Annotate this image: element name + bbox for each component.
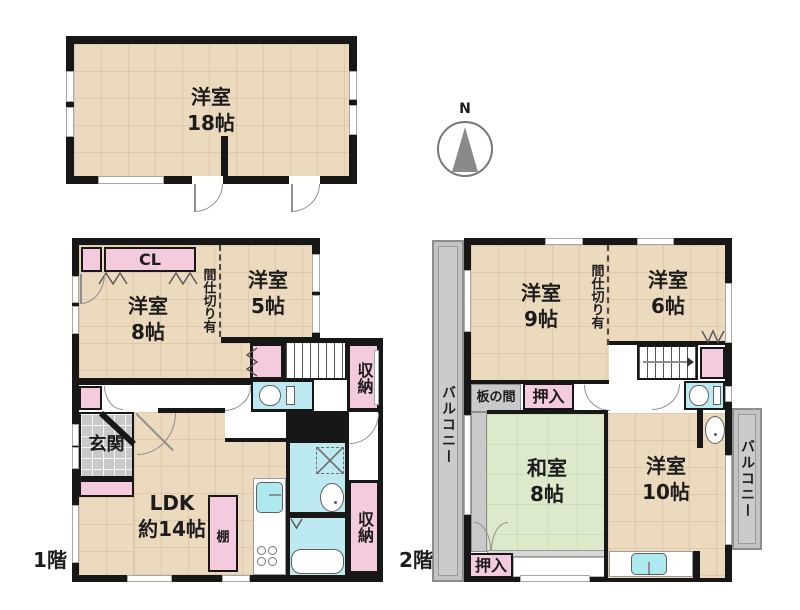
f2-window — [637, 238, 674, 245]
f2-partition-dashed-line — [607, 245, 609, 345]
f2-west10-size: 10帖 — [642, 479, 690, 505]
annex-room-size: 18帖 — [187, 110, 235, 136]
f1-window — [72, 276, 79, 303]
f2-west10-name: 洋室 — [646, 453, 686, 479]
f2-west9-name: 洋室 — [521, 280, 561, 306]
compass-needle-icon — [452, 127, 478, 172]
f2-veranda-strip — [513, 557, 607, 577]
washbasin-icon — [705, 416, 725, 444]
f2-washitsu-label: 和室 8帖 — [489, 450, 605, 512]
annex-room-label: 洋室 18帖 — [146, 78, 276, 142]
f1-shoe-cabinet — [79, 386, 102, 410]
f2-west9-size: 9帖 — [524, 306, 558, 332]
f2-window — [725, 386, 732, 402]
annex-door-leaf — [291, 184, 293, 212]
f1-storage-door-line — [374, 350, 379, 405]
f2-stairs-arrow-line — [643, 361, 687, 363]
toilet-icon — [689, 385, 721, 406]
annex-door-arc — [194, 184, 223, 212]
washbasin-icon — [320, 483, 344, 512]
f2-balcony-right-label: バルコニー — [737, 418, 757, 540]
f2-west6-size: 6帖 — [651, 293, 685, 319]
annex-door-opening — [289, 176, 320, 184]
f2-oshiire-upper-label: 押入 — [523, 383, 574, 410]
f1-window — [312, 295, 320, 333]
f2-itanoma-label: 板の間 — [471, 388, 521, 408]
f2-window — [520, 575, 590, 582]
floor1-label: 1階 — [26, 546, 74, 574]
f2-west6-name: 洋室 — [648, 267, 688, 293]
f2-wall-stub — [693, 551, 700, 578]
f2-washitsu-name: 和室 — [527, 455, 567, 481]
f1-shelf-label: 棚 — [208, 528, 238, 548]
annex-window — [98, 176, 164, 184]
compass-north-label: N — [455, 100, 475, 118]
annex-window — [66, 71, 74, 102]
f1-window — [312, 254, 320, 292]
toilet-icon — [259, 385, 295, 406]
floor-plan: N 洋室 18帖 CL 間仕切り有 洋室 8帖 洋室 5帖 収納 — [0, 0, 800, 610]
f2-west6-label: 洋室 6帖 — [612, 262, 724, 324]
annex-window — [349, 71, 357, 100]
f2-oshiire-lower-label: 押入 — [469, 553, 513, 578]
floor2-label: 2階 — [392, 546, 440, 574]
bifold-door-icon — [701, 330, 725, 343]
annex-partition-wall — [221, 136, 228, 176]
f2-washitsu-size: 8帖 — [530, 481, 564, 507]
annex-door-leaf — [194, 184, 196, 212]
f1-ldk-name: LDK — [150, 490, 195, 516]
f1-entrance-door — [72, 424, 79, 446]
f1-window — [222, 575, 250, 582]
f1-closet-cl-label: CL — [104, 247, 196, 272]
bifold-door-icon — [168, 272, 198, 285]
f1-ldk-size: 約14帖 — [138, 516, 206, 542]
f2-west9-label: 洋室 9帖 — [483, 275, 599, 337]
f1-stairs — [284, 341, 347, 380]
kitchen-sink-icon — [256, 482, 283, 513]
f2-window — [545, 238, 583, 245]
annex-window — [349, 105, 357, 135]
f1-west8-size: 8帖 — [131, 319, 165, 345]
f2-stairs-arrow-head — [687, 357, 694, 367]
annex-window — [66, 107, 74, 137]
f1-window — [72, 306, 79, 334]
f1-wall — [225, 438, 286, 442]
faucet-icon — [269, 494, 281, 496]
f1-west5-label: 洋室 5帖 — [224, 262, 312, 324]
f1-hallway-east — [225, 412, 286, 441]
f1-west8-door-leaf — [80, 274, 82, 304]
f2-balcony-door — [464, 415, 471, 515]
f1-west8-label: 洋室 8帖 — [90, 288, 206, 350]
f1-window — [127, 575, 172, 582]
f1-west5-name: 洋室 — [248, 267, 288, 293]
annex-room-name: 洋室 — [191, 84, 231, 110]
washbasin-drain-dot — [714, 433, 717, 436]
bathtub-icon — [291, 549, 344, 574]
annex-door-arc — [291, 184, 320, 212]
f2-wall-stub — [697, 410, 703, 448]
f1-entrance-door — [72, 447, 79, 469]
folding-door-icon — [290, 518, 303, 529]
f1-partition-dashed-line — [219, 245, 221, 337]
f2-west10-label: 洋室 10帖 — [610, 448, 722, 510]
f2-balcony-left-label: バルコニー — [438, 355, 458, 495]
f2-balcony-door — [464, 270, 471, 332]
faucet-icon — [648, 562, 650, 574]
f2-balcony-door — [725, 455, 732, 545]
annex-door-opening — [192, 176, 223, 184]
bifold-door-icon — [246, 347, 258, 377]
f2-window — [725, 283, 732, 343]
f1-west8-name: 洋室 — [128, 293, 168, 319]
washbasin-drain-dot — [334, 501, 337, 504]
f1-closet-small — [81, 247, 102, 272]
stove-icon — [257, 546, 277, 566]
f2-stair-closet — [700, 347, 725, 379]
washing-machine-icon — [316, 447, 344, 474]
f1-west5-size: 5帖 — [251, 293, 285, 319]
f1-stair-landing — [314, 380, 347, 411]
f1-storage-lower-label: 収納 — [349, 493, 379, 561]
